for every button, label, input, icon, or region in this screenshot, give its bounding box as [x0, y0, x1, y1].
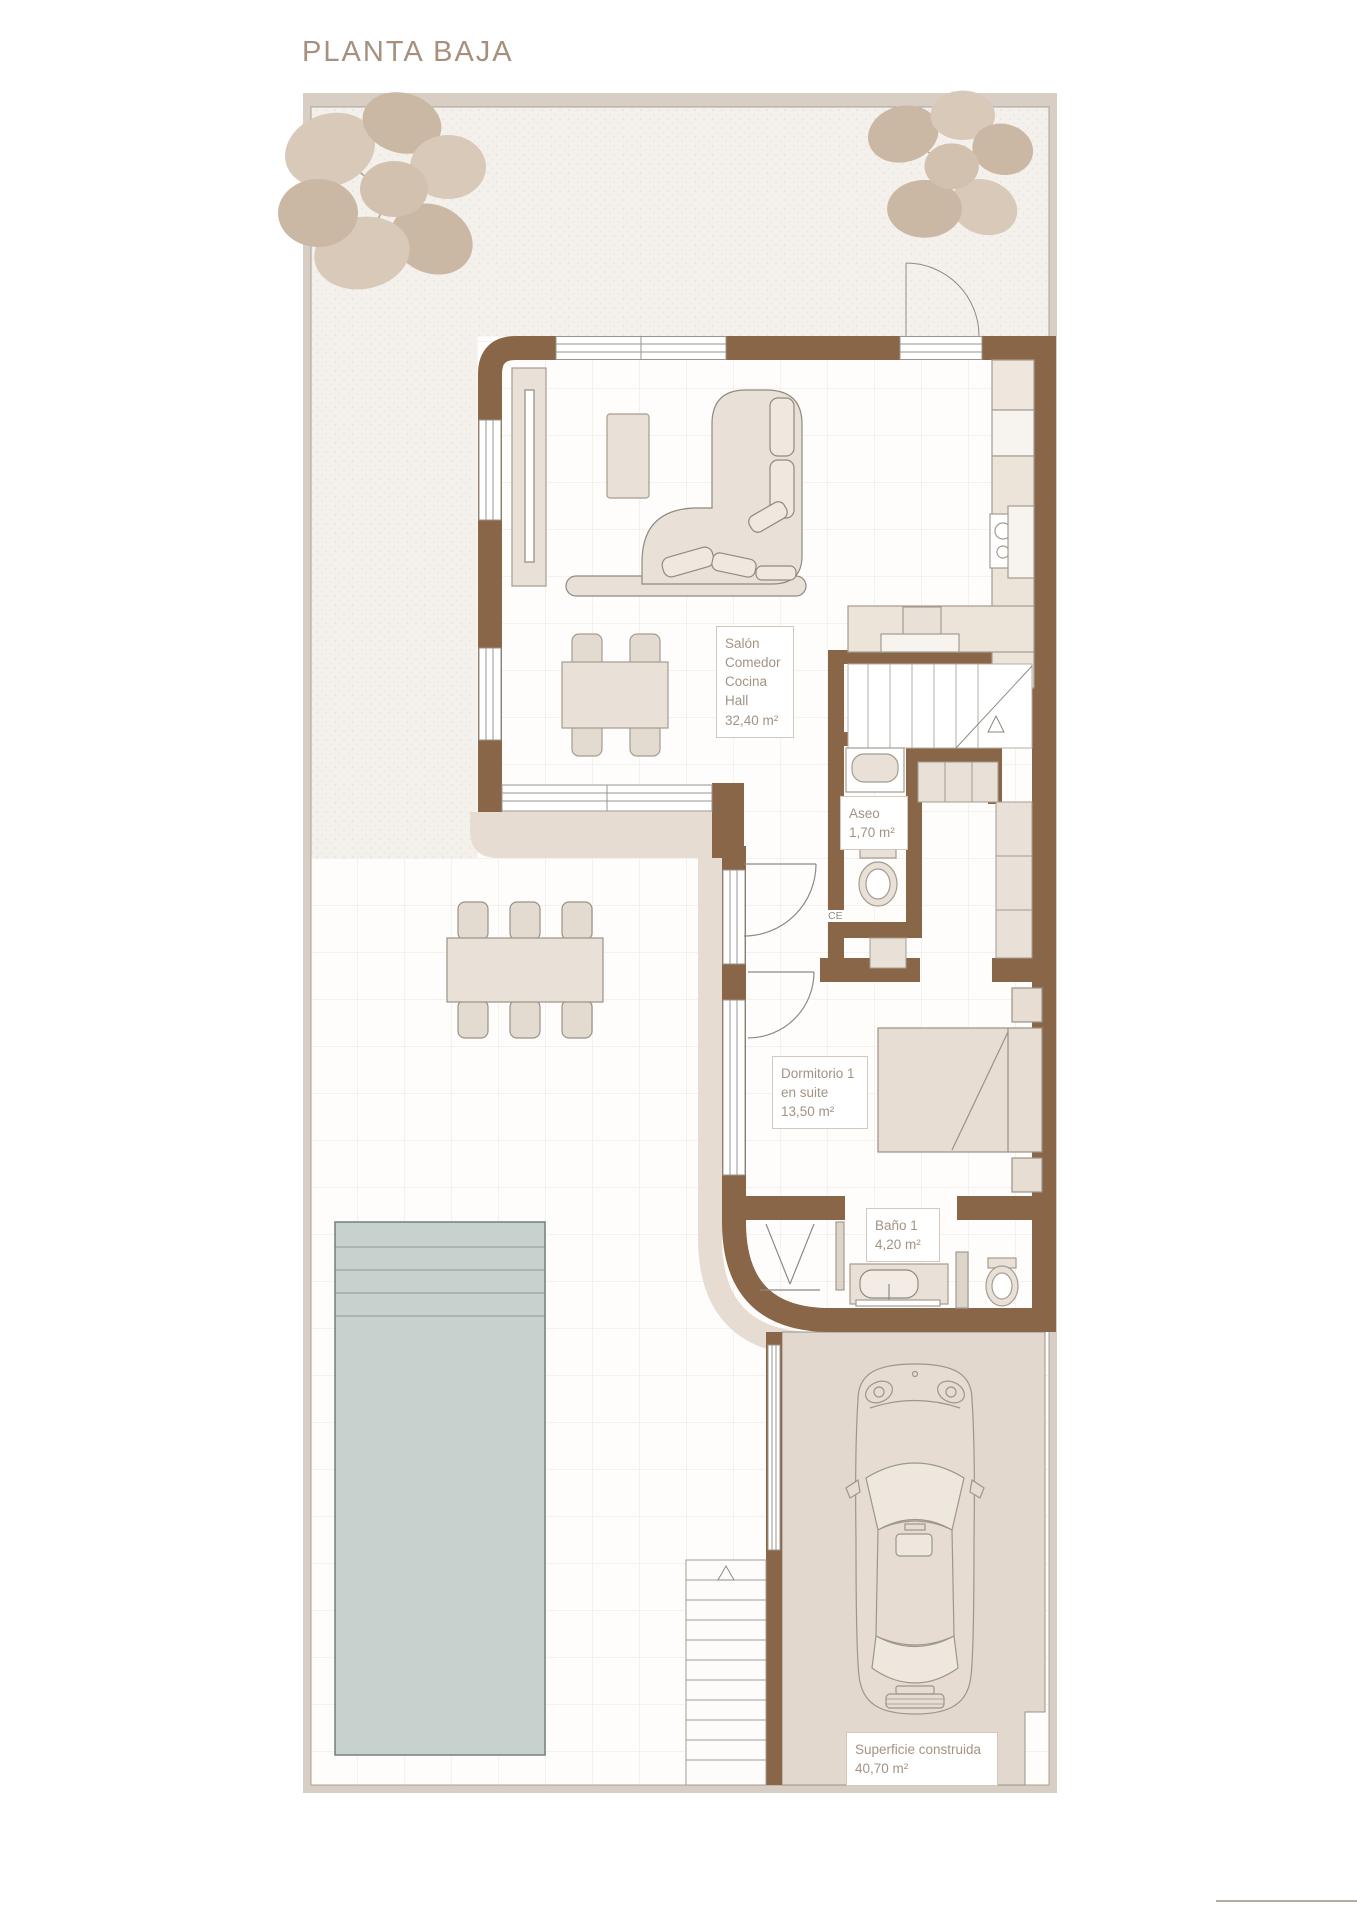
room-label-aseo: Aseo 1,70 m² — [840, 796, 908, 850]
window-bedroom-west — [723, 1000, 745, 1175]
fridge — [992, 410, 1034, 456]
room-area: 32,40 m² — [725, 711, 785, 730]
exterior-stairs — [686, 1560, 766, 1785]
window-hall-west — [723, 870, 745, 964]
window-living-south — [502, 785, 712, 811]
hall-closet — [918, 762, 998, 802]
wall-pillar — [712, 783, 744, 858]
car — [846, 1364, 984, 1714]
floor-plan-page: PLANTA BAJA — [0, 0, 1357, 1920]
car-windshield — [866, 1463, 964, 1530]
shower-screen — [836, 1222, 844, 1290]
nightstand-2 — [1012, 1158, 1042, 1192]
window-left-1 — [479, 420, 501, 520]
window-garage-west — [768, 1345, 780, 1550]
room-label-dormitorio: Dormitorio 1 en suite 13,50 m² — [772, 1056, 868, 1129]
footer-rule — [1216, 1900, 1357, 1902]
kitchen-island — [1008, 506, 1034, 578]
oven — [903, 607, 941, 635]
wardrobe — [996, 802, 1032, 958]
kitchen-corner-unit — [992, 360, 1034, 410]
outdoor-table — [447, 938, 603, 1002]
window-left-2 — [479, 648, 501, 740]
floor-plan-svg — [0, 0, 1357, 1920]
room-area: 4,20 m² — [875, 1235, 931, 1254]
room-label-superficie: Superficie construida 40,70 m² — [846, 1732, 998, 1786]
ce-annotation: CE — [826, 910, 845, 922]
coffee-table — [607, 414, 649, 498]
bath-partition — [956, 1252, 968, 1308]
outdoor-dining-set — [447, 902, 603, 1038]
room-area: 1,70 m² — [849, 823, 899, 842]
dining-table — [562, 662, 668, 728]
shaft — [870, 938, 906, 968]
kitchen-sink-unit — [881, 634, 959, 652]
wall-aseo-bottom — [844, 922, 906, 938]
room-label-bano: Baño 1 4,20 m² — [866, 1208, 940, 1262]
nightstand-1 — [1012, 988, 1042, 1022]
room-area: 40,70 m² — [855, 1759, 989, 1778]
tv — [525, 390, 534, 562]
room-area: 13,50 m² — [781, 1102, 859, 1121]
wall-under-stairs — [908, 748, 1002, 762]
pool — [335, 1222, 545, 1755]
aseo-sink — [852, 754, 898, 782]
stairs — [848, 664, 1032, 748]
window-top — [556, 337, 726, 360]
room-label-salon: Salón Comedor Cocina Hall 32,40 m² — [716, 626, 794, 738]
